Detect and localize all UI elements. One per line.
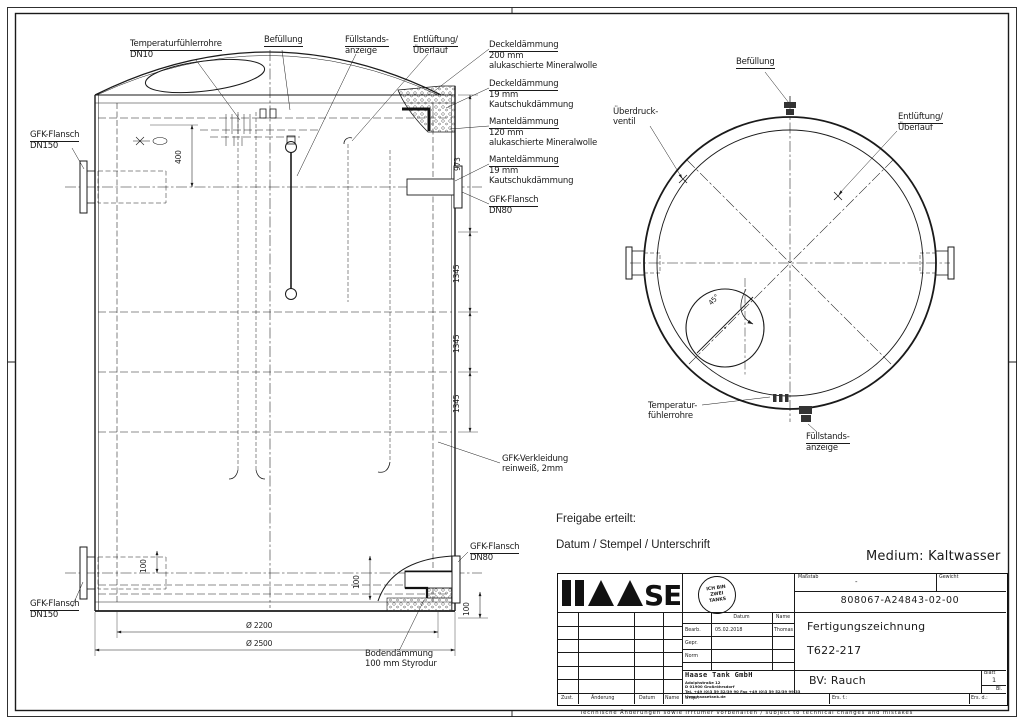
dim-dia-2200: Ø 2200 [246, 621, 272, 630]
label-line: alukaschierte Mineralwolle [489, 62, 597, 72]
label-line: Überlauf [898, 124, 933, 134]
gewicht-label: Gewicht [939, 575, 958, 580]
flange-dn80-right [407, 166, 462, 208]
haase-logo-se: SE [644, 579, 680, 608]
label-manteldaemmung-19: Manteldämmung 19 mm Kautschukdämmung [489, 156, 573, 187]
label-line: DN80 [489, 207, 512, 217]
label-line: DN150 [30, 611, 58, 621]
address-line: www.haasetank.de [685, 695, 800, 700]
dim-1345-3: 1345 [452, 395, 461, 413]
dim-dia-2500: Ø 2500 [246, 639, 272, 648]
label-line: alukaschierte Mineralwolle [489, 139, 597, 149]
label-gfk-flansch-dn80-bottom: GFK-Flansch DN80 [470, 543, 519, 564]
label-fuellstandsanzeige-top: Füllstands- anzeige [806, 433, 850, 454]
stamp-line: TANKS [709, 597, 727, 605]
aenderung-label: Änderung [591, 696, 614, 701]
tb-divider [558, 679, 682, 680]
tb-divider [682, 636, 794, 637]
tb-divider [936, 574, 937, 592]
dim-1345-2: 1345 [452, 335, 461, 353]
label-bodendaemmung: Bodendämmung 100 mm Styrodur [365, 650, 437, 670]
title-block: SE ICH BIN ZWEI TANKS Maßstab - Gewicht … [557, 573, 1008, 706]
col-datum: Datum [711, 615, 772, 620]
front-leaders [72, 49, 500, 649]
label-line: 100 mm Styrodur [365, 660, 437, 670]
label-line: reinweiß, 2mm [502, 465, 563, 475]
col-name: Name [772, 615, 794, 620]
label-entlueftung-front: Entlüftung/ Überlauf [413, 36, 458, 57]
ers-d-label: Ers. d.: [971, 696, 988, 701]
drawing-sheet: Temperaturfühlerrohre DN10 Befüllung Fül… [0, 0, 1024, 724]
haase-logo: SE [562, 578, 680, 608]
tb-divider [981, 670, 982, 693]
tb-divider [558, 612, 1006, 613]
company-address: Adolphstraße 12 D 01900 Großröhrsdorf Te… [685, 681, 800, 701]
tb-divider [558, 652, 682, 653]
masstab-value: - [855, 578, 858, 586]
label-line: Überlauf [413, 47, 448, 57]
top-leaders [650, 72, 897, 432]
tb-divider [682, 574, 683, 704]
label-deckeldaemmung-19: Deckeldämmung 19 mm Kautschukdämmung [489, 80, 573, 111]
drawing-number: 808067-A24843-02-00 [794, 595, 1006, 606]
tb-divider [682, 662, 794, 663]
medium-text: Medium: Kaltwasser [866, 549, 1001, 564]
label-line: DN10 [130, 51, 153, 61]
label-gfk-verkleidung: GFK-Verkleidung reinweiß, 2mm [502, 455, 568, 475]
masstab-label: Maßstab [798, 575, 818, 580]
bearb-datum: 05.02.2018 [715, 628, 742, 633]
level-indicator [286, 136, 297, 300]
label-line: fühlerrohre [648, 412, 693, 422]
dim-100-left: 100 [139, 559, 148, 573]
freigabe-text: Freigabe erteilt: [556, 513, 636, 525]
label-line: anzeige [345, 47, 377, 57]
label-temperaturfuehlerrohre-top: Temperatur- fühlerrohre [648, 402, 697, 422]
name-label: Name [665, 696, 679, 701]
stempel-text: Datum / Stempel / Unterschrift [556, 539, 710, 551]
zwei-tanks-stamp: ICH BIN ZWEI TANKS [696, 574, 739, 617]
tb-divider [981, 685, 1006, 686]
tb-divider [794, 591, 1006, 592]
dim-400: 400 [174, 150, 183, 164]
blatt-label: Blatt [984, 671, 995, 676]
row-gepr: Gepr. [685, 641, 698, 646]
label-line: DN80 [470, 554, 493, 564]
tb-divider [558, 666, 682, 667]
datum-label: Datum [639, 696, 655, 701]
dim-973: 973 [453, 157, 462, 171]
label-ueberdruckventil: Überdruck- ventil [613, 108, 658, 128]
drawing-subtitle: T622-217 [807, 644, 861, 657]
urspr-label: Urspr. [685, 696, 699, 701]
tb-divider [558, 626, 682, 627]
tb-divider [558, 639, 682, 640]
dim-100-mid: 100 [352, 575, 361, 589]
tb-divider [682, 623, 794, 624]
label-line: Kautschukdämmung [489, 177, 573, 187]
changes-note: Technische Änderungen sowie Irrtümer vor… [580, 710, 913, 716]
company-name: Haase Tank GmbH [685, 671, 753, 679]
manhole-circle [686, 289, 764, 367]
label-line: Befüllung [736, 58, 775, 69]
tb-divider [682, 649, 794, 650]
label-deckeldaemmung-200: Deckeldämmung 200 mm alukaschierte Miner… [489, 41, 597, 72]
label-befuellung-top: Befüllung [736, 58, 775, 69]
label-gfk-flansch-dn150-bottom: GFK-Flansch DN150 [30, 600, 79, 621]
label-line: Kautschukdämmung [489, 101, 573, 111]
zust-label: Zust. [561, 696, 573, 701]
label-gfk-flansch-dn150-top: GFK-Flansch DN150 [30, 131, 79, 152]
drawing-title: Fertigungszeichnung [807, 620, 925, 633]
label-gfk-flansch-dn80-right: GFK-Flansch DN80 [489, 196, 538, 217]
tb-divider [829, 693, 830, 704]
label-line: DN150 [30, 142, 58, 152]
label-entlueftung-top: Entlüftung/ Überlauf [898, 113, 943, 134]
bearb-name: Thomas [774, 628, 793, 633]
row-norm: Norm [685, 654, 698, 659]
dim-100-right: 100 [462, 602, 471, 616]
label-line: ventil [613, 118, 636, 128]
label-fuellstandsanzeige-front: Füllstands- anzeige [345, 36, 389, 57]
label-temperaturfuehlerrohre: Temperaturfühlerrohre DN10 [130, 40, 222, 61]
bv-field: BV: Rauch [809, 674, 866, 687]
dim-1345-1: 1345 [452, 265, 461, 283]
bl-label: Bl. [996, 687, 1002, 692]
label-line: anzeige [806, 444, 838, 454]
front-view-drawing [65, 49, 500, 656]
top-nozzles [773, 102, 812, 422]
label-befuellung-front: Befüllung [264, 36, 303, 47]
ers-f-label: Ers. f.: [832, 696, 847, 701]
label-line: Befüllung [264, 36, 303, 47]
label-manteldaemmung-120: Manteldämmung 120 mm alukaschierte Miner… [489, 118, 597, 149]
blatt-value: 1 [992, 676, 996, 684]
row-bearb: Bearb. [685, 628, 701, 633]
tb-divider [969, 693, 970, 704]
